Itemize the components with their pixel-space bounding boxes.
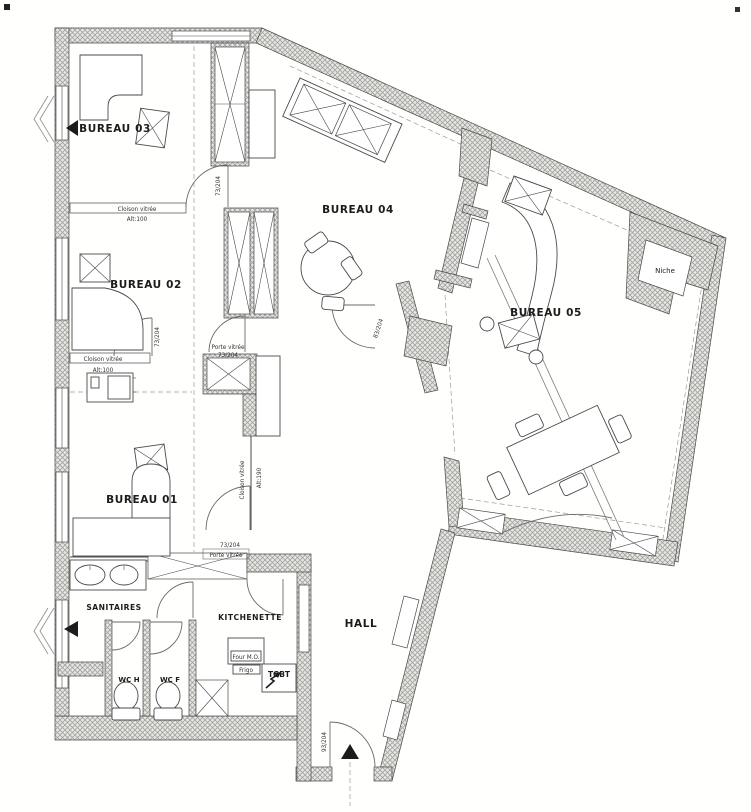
door-wc-f [150,622,182,654]
door-entrance [330,722,375,767]
room-label-bureau02: BUREAU 02 [110,279,182,291]
floorplan-page: BUREAU 03 BUREAU 02 BUREAU 01 BUREAU 04 … [0,0,751,812]
window [56,86,68,140]
ann-porte-vitree-2: Porte vitrée [210,552,243,559]
door-kitchenette [247,579,283,615]
label-tgbt: TGBT [268,670,291,679]
ann-83: 83/204 [373,318,385,339]
label-frigo: Frigo [239,668,253,674]
ann-73-b01: 73/204 [220,543,240,549]
room-label-sanitaires: SANITAIRES [86,603,141,612]
desk-bureau02 [72,288,143,350]
cupboard [249,90,275,158]
wall-hall-right [378,529,455,781]
desk-bureau03 [80,55,142,120]
scan-artifact [4,4,10,10]
toilet-wc-f [154,682,182,720]
wall-stub [243,394,257,436]
shaft-xbox [228,212,250,314]
wc-divider [105,620,112,716]
shaft-xbox [254,212,274,314]
label-four-mo: Four M.O. [232,655,259,661]
room-label-hall: HALL [345,618,378,630]
room-label-bureau04: BUREAU 04 [322,204,394,216]
ann-cloison-1: Cloison vitrée [118,206,157,213]
stool [480,317,494,331]
hall-left-panel [299,585,309,652]
chair [321,296,344,311]
furniture [72,55,643,556]
floorplan-drawing: BUREAU 03 BUREAU 02 BUREAU 01 BUREAU 04 … [0,0,751,812]
window [56,388,68,448]
desk-bureau01 [132,464,170,518]
ann-73-b02: 73/204 [155,327,161,347]
chair [486,471,511,501]
door-sanitaires [157,582,193,618]
cabinet-xbox [505,176,552,215]
ann-alt190: Alt:190 [257,467,263,488]
ann-alt100-1: Alt:100 [127,217,148,223]
room-label-wc-f: WC F [160,676,180,684]
meeting-table [471,381,643,523]
door-wc-h [112,622,140,650]
wc-divider [189,620,196,716]
room-label-bureau01: BUREAU 01 [106,494,178,506]
wall-junction-block [404,316,452,366]
wall-stub [58,662,103,676]
shaft-xbox [215,47,245,162]
room-label-kitchenette: KITCHENETTE [218,613,282,622]
room-label-wc-h: WC H [118,676,139,684]
wall-kitchen-top [247,554,311,572]
toilet-wc-h [112,682,140,720]
room-label-bureau03: BUREAU 03 [79,123,151,135]
stool [529,350,543,364]
ann-73-b03: 73/204 [216,176,222,196]
fixtures [70,560,296,720]
window [56,238,68,320]
wc-divider [143,620,150,716]
desk-bureau01-return [73,518,170,556]
room-label-bureau05: BUREAU 05 [510,307,582,319]
cabinet-xbox [80,254,110,282]
cupboard [256,356,280,436]
ann-porte-vitree-1: Porte vitrée [212,344,245,351]
ann-73-center: 73/204 [218,353,238,359]
ann-alt100-2: Alt:100 [93,368,114,374]
printer-table [87,373,136,402]
window-swing-chevrons [34,96,54,654]
shaft-xbox [207,358,250,390]
window [172,31,250,41]
ann-cloison-2: Cloison vitrée [84,356,123,363]
wall-hall-bottom-right [374,767,392,781]
ann-cloison-3: Cloison vitrée [239,460,246,499]
arrow-entrance [341,744,359,759]
door-bureau04 [332,305,375,348]
ann-93: 93/204 [322,732,328,752]
window [56,472,68,542]
scan-artifact [735,7,740,12]
room-label-niche: Niche [655,267,675,275]
window-xbox [196,680,228,716]
